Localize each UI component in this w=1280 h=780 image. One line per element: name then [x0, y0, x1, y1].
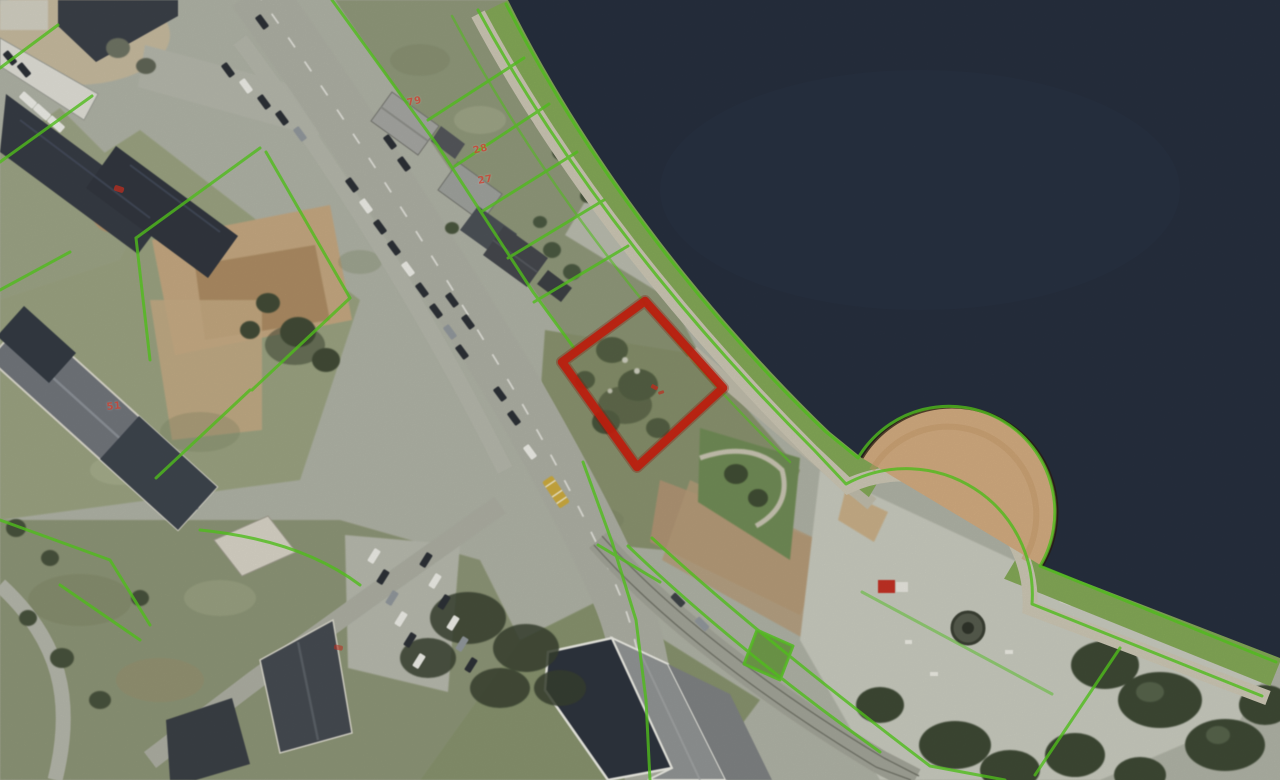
map-image: [0, 0, 1280, 780]
photo-grain-overlay: [0, 0, 1280, 780]
aerial-map-canvas[interactable]: 79 28 27 51: [0, 0, 1280, 780]
